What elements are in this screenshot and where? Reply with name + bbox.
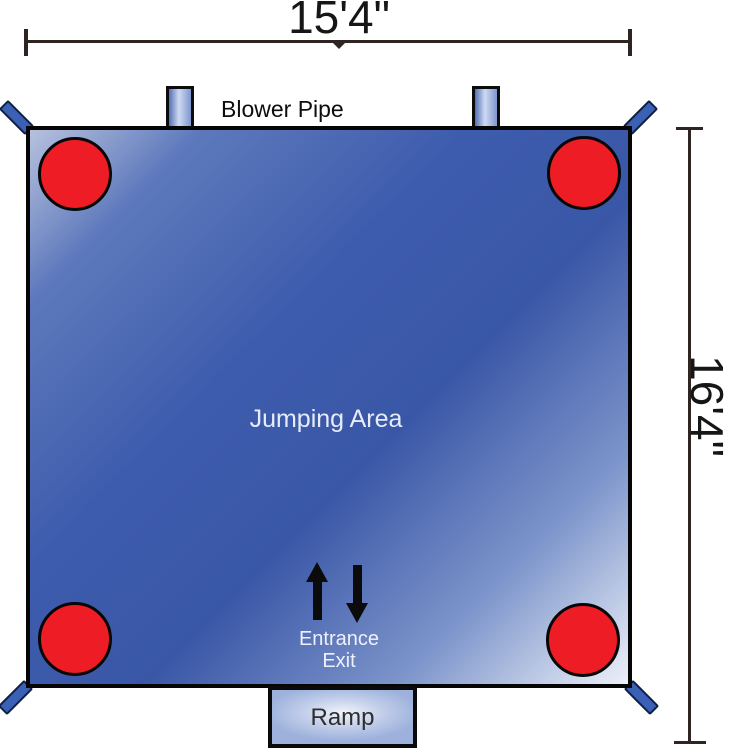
exit-label: Exit: [322, 650, 355, 673]
anchor-point-bottom-left: [38, 602, 112, 676]
width-dimension-center-notch: [333, 43, 345, 49]
blower-pipe-left: [166, 86, 194, 129]
ramp: Ramp: [268, 686, 417, 748]
width-dimension-tick-right: [628, 29, 632, 56]
anchor-point-top-right: [547, 136, 621, 210]
height-dimension-label: 16'4": [680, 355, 731, 457]
anchor-point-top-left: [38, 137, 112, 211]
exit-arrow-down-icon: [346, 565, 368, 623]
jumping-area-label: Jumping Area: [250, 405, 403, 434]
width-dimension-tick-left: [24, 29, 28, 56]
height-dimension-tick-top: [676, 127, 703, 130]
width-dimension-label: 15'4": [288, 0, 390, 44]
blower-pipe-right: [472, 86, 500, 129]
width-dimension-line: [26, 40, 632, 43]
anchor-point-bottom-right: [546, 603, 620, 677]
height-dimension-tick-bottom: [674, 741, 706, 744]
blower-pipe-label: Blower Pipe: [221, 96, 344, 123]
arrow-up-head: [306, 562, 328, 582]
arrow-up-shaft: [313, 582, 322, 620]
bounce-house-diagram: 15'4" Blower Pipe Jumping Area Entrance …: [0, 0, 731, 750]
ramp-label: Ramp: [310, 704, 374, 732]
entrance-arrow-up-icon: [306, 562, 328, 620]
arrow-down-head: [346, 603, 368, 623]
arrow-down-shaft: [353, 565, 362, 603]
entrance-label: Entrance: [299, 628, 379, 651]
